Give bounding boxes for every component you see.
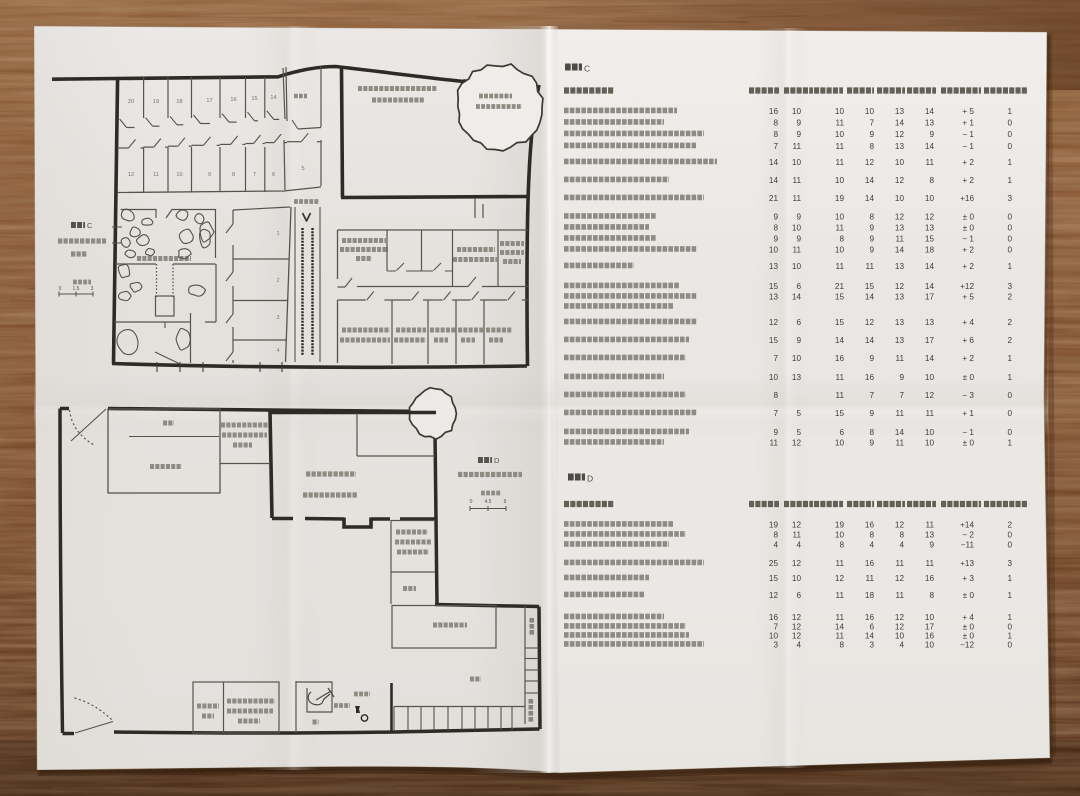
svg-text:6: 6 [272,172,275,178]
svg-text:8: 8 [773,391,778,400]
svg-text:9: 9 [208,172,211,178]
svg-text:+ 1: + 1 [962,119,974,128]
svg-text:7: 7 [869,391,874,400]
svg-text:0: 0 [1007,224,1012,233]
svg-text:0: 0 [1007,213,1012,222]
svg-text:± 0: ± 0 [963,591,975,600]
svg-text:7: 7 [869,119,874,128]
svg-text:16: 16 [769,613,779,622]
svg-text:12: 12 [792,623,802,632]
svg-text:9: 9 [869,235,874,244]
svg-text:11: 11 [770,439,779,448]
svg-text:11: 11 [836,262,845,271]
svg-text:13: 13 [925,318,935,327]
svg-text:1: 1 [1007,176,1012,185]
svg-text:10: 10 [925,613,935,622]
svg-text:0: 0 [1007,391,1012,400]
svg-text:10: 10 [835,176,845,185]
svg-text:13: 13 [769,262,779,271]
svg-text:9: 9 [869,224,874,233]
svg-text:6: 6 [796,591,801,600]
svg-text:± 0: ± 0 [963,623,975,632]
svg-text:7: 7 [773,142,778,151]
svg-text:16: 16 [865,559,875,568]
svg-text:+ 2: + 2 [962,158,974,167]
svg-text:3: 3 [773,641,778,650]
svg-text:10: 10 [835,107,845,116]
svg-text:10: 10 [792,262,802,271]
svg-text:11: 11 [836,591,845,600]
svg-text:10: 10 [895,632,905,641]
svg-text:11: 11 [793,142,802,151]
svg-text:11: 11 [836,224,845,233]
svg-text:8: 8 [869,142,874,151]
svg-text:3: 3 [1007,194,1012,203]
svg-text:2: 2 [1007,318,1012,327]
svg-text:8: 8 [929,176,934,185]
svg-text:13: 13 [925,531,935,540]
svg-text:9: 9 [773,235,778,244]
svg-text:9: 9 [869,130,874,139]
svg-text:8: 8 [839,641,844,650]
svg-text:0: 0 [1007,428,1012,437]
svg-text:25: 25 [769,559,779,568]
svg-text:10: 10 [792,224,802,233]
svg-text:9: 9 [796,130,801,139]
svg-text:17: 17 [206,98,212,104]
svg-text:+ 4: + 4 [962,318,974,327]
svg-text:+ 3: + 3 [962,574,974,583]
svg-text:6: 6 [796,318,801,327]
svg-text:15: 15 [251,96,257,102]
svg-text:4: 4 [277,348,280,354]
svg-text:10: 10 [895,194,905,203]
svg-text:− 1: − 1 [962,142,974,151]
svg-text:1: 1 [1007,158,1012,167]
svg-text:1: 1 [1007,107,1012,116]
svg-text:9: 9 [796,336,801,345]
svg-text:−11: −11 [961,541,975,550]
svg-text:C: C [584,64,590,74]
svg-text:10: 10 [895,158,905,167]
svg-text:11: 11 [836,119,845,128]
svg-text:11: 11 [836,373,845,382]
svg-text:± 0: ± 0 [963,632,975,641]
svg-text:6: 6 [869,623,874,632]
svg-text:11: 11 [793,531,802,540]
svg-text:12: 12 [792,559,802,568]
svg-text:3: 3 [869,641,874,650]
svg-text:11: 11 [896,409,905,418]
svg-text:16: 16 [865,613,875,622]
svg-text:+13: +13 [960,559,974,568]
svg-text:15: 15 [835,293,845,302]
svg-text:10: 10 [792,574,802,583]
svg-text:15: 15 [769,574,779,583]
svg-text:9: 9 [899,373,904,382]
svg-text:12: 12 [895,176,905,185]
svg-text:11: 11 [153,172,159,178]
svg-text:14: 14 [865,336,875,345]
svg-text:10: 10 [792,354,802,363]
svg-text:13: 13 [792,373,802,382]
svg-text:4: 4 [899,541,904,550]
svg-text:10: 10 [835,213,845,222]
svg-text:9: 9 [929,541,934,550]
svg-text:16: 16 [865,521,875,530]
svg-text:4.5: 4.5 [485,499,492,505]
svg-text:10: 10 [835,130,845,139]
svg-text:14: 14 [835,336,845,345]
svg-text:7: 7 [773,409,778,418]
svg-text:3: 3 [1007,282,1012,291]
svg-text:21: 21 [769,194,779,203]
svg-text:3: 3 [277,315,280,321]
svg-text:11: 11 [836,613,845,622]
svg-text:0: 0 [1007,623,1012,632]
svg-text:13: 13 [925,119,935,128]
svg-text:0: 0 [1007,119,1012,128]
svg-text:2: 2 [1007,293,1012,302]
svg-text:12: 12 [925,391,935,400]
svg-text:−12: −12 [960,641,974,650]
svg-text:0: 0 [59,286,62,292]
svg-text:12: 12 [865,158,875,167]
svg-text:2: 2 [1007,336,1012,345]
svg-text:13: 13 [895,142,905,151]
svg-text:0: 0 [1007,142,1012,151]
svg-text:11: 11 [836,142,845,151]
svg-text:± 0: ± 0 [963,439,975,448]
svg-text:12: 12 [895,613,905,622]
svg-text:10: 10 [925,194,935,203]
svg-text:1: 1 [1007,439,1012,448]
svg-text:3: 3 [1007,559,1012,568]
svg-text:1: 1 [1007,613,1012,622]
svg-text:− 3: − 3 [962,391,974,400]
svg-text:1: 1 [1007,574,1012,583]
svg-text:10: 10 [835,246,845,255]
svg-text:14: 14 [769,176,779,185]
svg-text:17: 17 [925,623,935,632]
svg-text:12: 12 [792,632,802,641]
svg-text:11: 11 [926,559,935,568]
svg-text:9: 9 [796,119,801,128]
svg-text:+12: +12 [960,282,974,291]
svg-text:± 0: ± 0 [963,224,975,233]
svg-text:11: 11 [793,246,802,255]
svg-text:14: 14 [270,95,276,101]
svg-text:1: 1 [1007,373,1012,382]
svg-text:11: 11 [836,559,845,568]
svg-text:9: 9 [869,439,874,448]
svg-text:12: 12 [895,623,905,632]
svg-text:12: 12 [769,318,779,327]
svg-text:D: D [587,474,593,484]
svg-text:14: 14 [925,354,935,363]
svg-text:5: 5 [796,409,801,418]
svg-text:6: 6 [839,428,844,437]
svg-text:12: 12 [835,574,845,583]
svg-text:0: 0 [1007,246,1012,255]
svg-text:9: 9 [796,235,801,244]
svg-text:11: 11 [793,176,802,185]
svg-text:11: 11 [836,632,845,641]
svg-text:3: 3 [91,286,94,292]
svg-text:0: 0 [1007,130,1012,139]
svg-text:0: 0 [1007,641,1012,650]
svg-text:19: 19 [769,521,779,530]
svg-text:17: 17 [925,336,935,345]
svg-text:10: 10 [769,246,779,255]
svg-text:16: 16 [925,632,935,641]
svg-text:11: 11 [896,439,905,448]
svg-text:11: 11 [836,391,845,400]
svg-text:10: 10 [865,107,875,116]
svg-text:14: 14 [925,107,935,116]
svg-text:9: 9 [929,130,934,139]
svg-text:13: 13 [925,224,935,233]
svg-text:13: 13 [769,293,779,302]
svg-text:12: 12 [925,213,935,222]
svg-text:14: 14 [925,142,935,151]
svg-text:8: 8 [869,213,874,222]
svg-text:14: 14 [925,262,935,271]
svg-text:12: 12 [128,172,134,178]
svg-text:4: 4 [869,541,874,550]
svg-text:20: 20 [128,99,134,105]
svg-text:8: 8 [839,235,844,244]
svg-text:+ 1: + 1 [962,409,974,418]
svg-text:8: 8 [773,531,778,540]
svg-text:14: 14 [895,428,905,437]
svg-text:15: 15 [835,318,845,327]
svg-text:11: 11 [896,591,905,600]
svg-text:4: 4 [899,641,904,650]
svg-text:7: 7 [773,623,778,632]
svg-text:10: 10 [835,439,845,448]
svg-text:6: 6 [796,282,801,291]
svg-text:0: 0 [470,499,473,505]
svg-text:11: 11 [926,158,935,167]
svg-text:+ 2: + 2 [962,262,974,271]
svg-text:− 2: − 2 [962,531,974,540]
svg-text:18: 18 [176,99,182,105]
svg-text:15: 15 [865,282,875,291]
svg-text:10: 10 [925,428,935,437]
svg-text:14: 14 [865,194,875,203]
svg-text:14: 14 [925,282,935,291]
svg-text:8: 8 [929,591,934,600]
svg-text:9: 9 [773,213,778,222]
svg-text:10: 10 [792,107,802,116]
svg-text:C: C [87,221,93,230]
svg-text:14: 14 [865,632,875,641]
svg-text:11: 11 [866,574,875,583]
svg-text:2: 2 [1007,521,1012,530]
svg-text:13: 13 [895,224,905,233]
svg-text:15: 15 [835,409,845,418]
svg-text:19: 19 [835,521,845,530]
svg-text:15: 15 [769,282,779,291]
svg-text:14: 14 [865,293,875,302]
svg-text:0: 0 [1007,531,1012,540]
svg-text:18: 18 [925,246,935,255]
svg-text:11: 11 [926,521,935,530]
svg-text:14: 14 [792,293,802,302]
svg-text:− 1: − 1 [962,130,974,139]
svg-text:5: 5 [796,428,801,437]
svg-text:14: 14 [769,158,779,167]
svg-text:9: 9 [869,354,874,363]
svg-text:10: 10 [176,172,182,178]
svg-text:13: 13 [895,107,905,116]
svg-text:+ 6: + 6 [962,336,974,345]
svg-text:12: 12 [792,521,802,530]
svg-text:12: 12 [895,130,905,139]
svg-text:16: 16 [865,373,875,382]
svg-text:16: 16 [769,107,779,116]
svg-text:0: 0 [1007,235,1012,244]
svg-text:+ 5: + 5 [962,107,974,116]
svg-text:18: 18 [865,591,875,600]
svg-text:7: 7 [899,391,904,400]
svg-text:16: 16 [230,97,236,103]
svg-text:10: 10 [769,373,779,382]
svg-text:+16: +16 [960,194,974,203]
svg-text:10: 10 [835,531,845,540]
svg-text:12: 12 [895,213,905,222]
svg-text:16: 16 [925,574,935,583]
svg-text:− 1: − 1 [962,428,974,437]
svg-text:1: 1 [1007,591,1012,600]
svg-text:9: 9 [773,428,778,437]
svg-text:+ 5: + 5 [962,293,974,302]
svg-text:14: 14 [895,119,905,128]
svg-text:4: 4 [796,541,801,550]
svg-text:10: 10 [925,439,935,448]
svg-text:14: 14 [835,623,845,632]
svg-text:1: 1 [1007,262,1012,271]
svg-text:15: 15 [925,235,935,244]
svg-text:9: 9 [869,246,874,255]
svg-text:12: 12 [895,521,905,530]
svg-text:15: 15 [769,336,779,345]
svg-text:11: 11 [896,235,905,244]
svg-text:11: 11 [926,409,935,418]
svg-text:± 0: ± 0 [963,213,975,222]
svg-text:12: 12 [792,613,802,622]
svg-text:8: 8 [773,119,778,128]
svg-text:8: 8 [773,130,778,139]
svg-text:4: 4 [796,641,801,650]
svg-text:13: 13 [895,318,905,327]
svg-text:14: 14 [895,246,905,255]
svg-text:10: 10 [925,641,935,650]
svg-text:21: 21 [835,282,845,291]
svg-text:9: 9 [796,213,801,222]
svg-text:7: 7 [773,354,778,363]
svg-text:1.5: 1.5 [73,286,80,292]
svg-text:16: 16 [835,354,845,363]
svg-text:8: 8 [869,531,874,540]
svg-text:− 1: − 1 [962,235,974,244]
svg-text:11: 11 [836,158,845,167]
svg-text:12: 12 [792,439,802,448]
svg-text:10: 10 [769,632,779,641]
svg-text:± 0: ± 0 [963,373,975,382]
svg-text:8: 8 [232,172,235,178]
svg-text:+ 2: + 2 [962,246,974,255]
svg-text:9: 9 [869,409,874,418]
svg-text:11: 11 [896,354,905,363]
svg-text:+ 2: + 2 [962,176,974,185]
svg-text:7: 7 [253,172,256,178]
svg-text:13: 13 [895,293,905,302]
svg-text:8: 8 [869,428,874,437]
svg-text:0: 0 [1007,541,1012,550]
svg-text:10: 10 [792,158,802,167]
svg-text:12: 12 [895,282,905,291]
svg-text:8: 8 [899,531,904,540]
svg-text:5: 5 [301,166,304,172]
svg-text:14: 14 [865,176,875,185]
svg-text:4: 4 [773,541,778,550]
svg-text:2: 2 [277,278,280,284]
svg-text:8: 8 [839,541,844,550]
svg-text:D: D [494,456,500,465]
svg-text:11: 11 [793,194,802,203]
svg-text:1: 1 [1007,632,1012,641]
svg-text:8: 8 [773,224,778,233]
svg-text:17: 17 [925,293,935,302]
svg-text:11: 11 [896,559,905,568]
svg-text:19: 19 [835,194,845,203]
svg-text:11: 11 [866,262,875,271]
svg-text:9: 9 [504,499,507,505]
svg-text:+14: +14 [960,521,974,530]
svg-text:+ 2: + 2 [962,354,974,363]
svg-text:+ 4: + 4 [962,613,974,622]
svg-text:12: 12 [769,591,779,600]
svg-text:12: 12 [865,318,875,327]
svg-text:19: 19 [153,99,159,105]
svg-text:0: 0 [1007,409,1012,418]
svg-text:1: 1 [1007,354,1012,363]
svg-text:12: 12 [895,574,905,583]
svg-text:10: 10 [925,373,935,382]
svg-text:13: 13 [895,262,905,271]
svg-text:1: 1 [277,231,280,237]
svg-text:13: 13 [895,336,905,345]
